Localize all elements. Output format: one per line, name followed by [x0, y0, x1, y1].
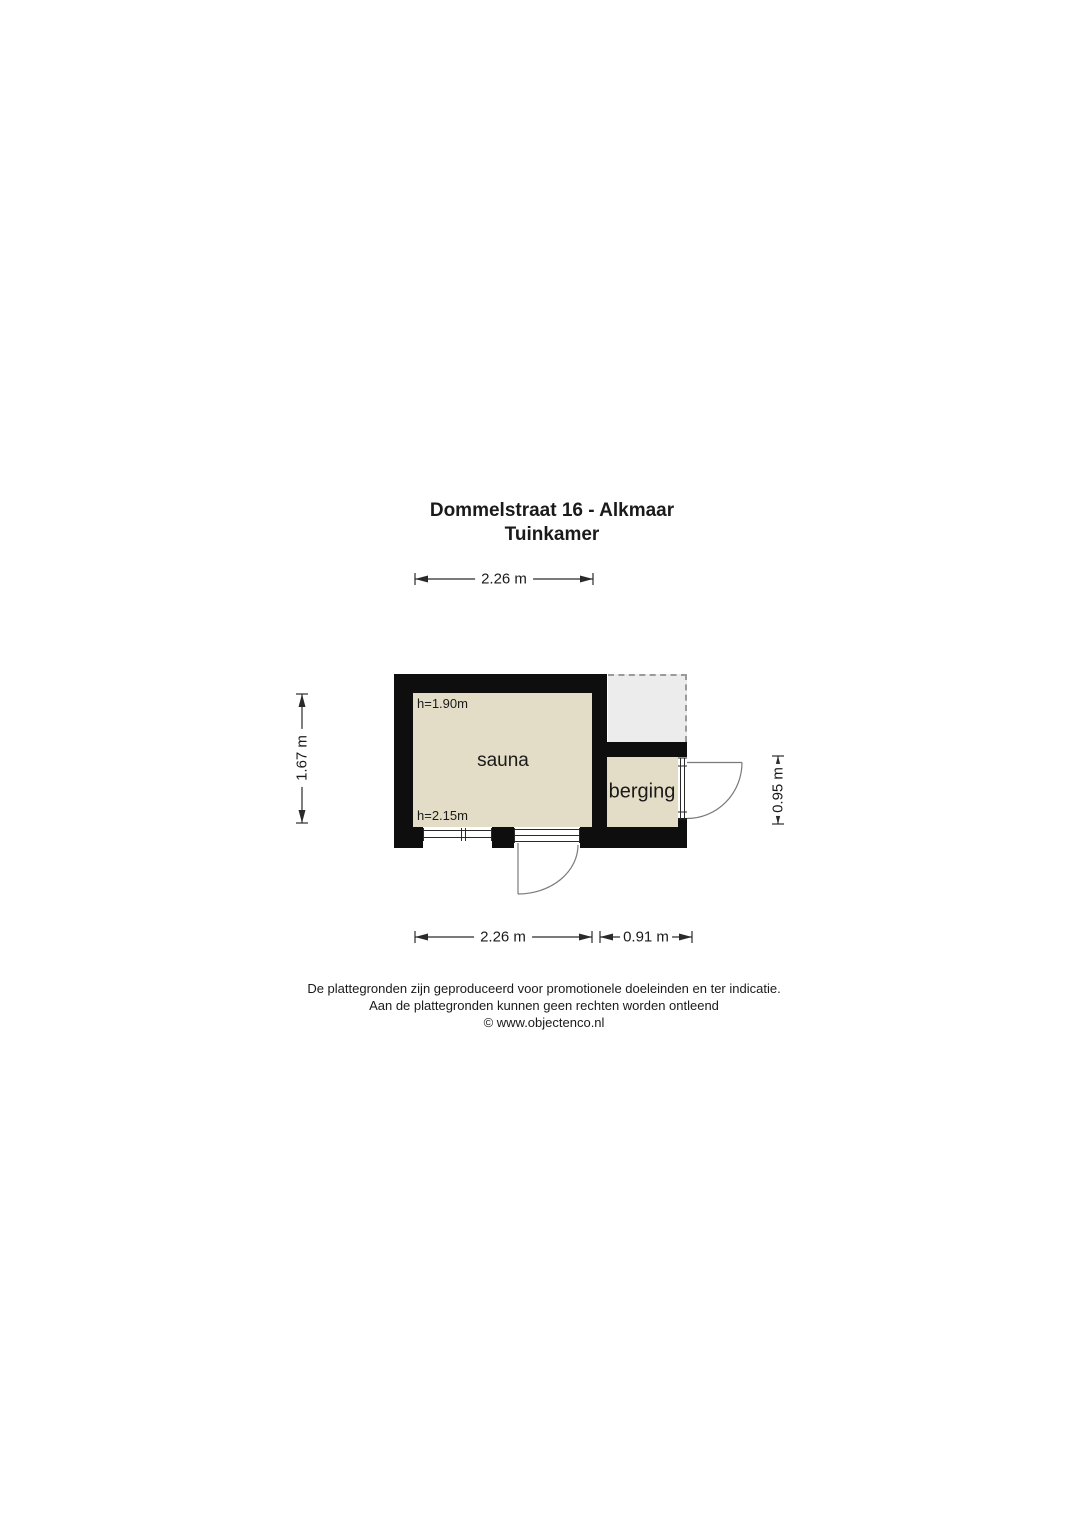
- disclaimer-line2: Aan de plattegronden kunnen geen rechten…: [307, 997, 780, 1014]
- berging-door-frame: [678, 758, 687, 819]
- berging-door-swing: [687, 763, 742, 819]
- sauna-room-label: sauna: [477, 750, 529, 772]
- dimension-label-right-height: 0.95 m: [770, 764, 787, 816]
- dimension-label-top-width: 2.26 m: [475, 571, 533, 588]
- ceiling-height-label-bottom: h=2.15m: [417, 808, 468, 823]
- door-sill: [514, 828, 580, 843]
- disclaimer-line1: De plattegronden zijn geproduceerd voor …: [307, 980, 780, 997]
- disclaimer: De plattegronden zijn geproduceerd voor …: [307, 980, 780, 1031]
- dimension-label-bottom-width-berging: 0.91 m: [620, 929, 672, 946]
- floorplan-page: Dommelstraat 16 - Alkmaar Tuinkamer: [0, 0, 1080, 1527]
- dimension-label-bottom-width-sauna: 2.26 m: [474, 929, 532, 946]
- berging-room-label: berging: [609, 781, 676, 804]
- window-symbol: [424, 828, 492, 841]
- dimension-label-left-height: 1.67 m: [294, 729, 311, 787]
- plan-vector-overlay: [0, 0, 1080, 1527]
- copyright-line: © www.objectenco.nl: [307, 1014, 780, 1031]
- sauna-door-swing: [518, 843, 578, 894]
- ceiling-height-label-top: h=1.90m: [417, 696, 468, 711]
